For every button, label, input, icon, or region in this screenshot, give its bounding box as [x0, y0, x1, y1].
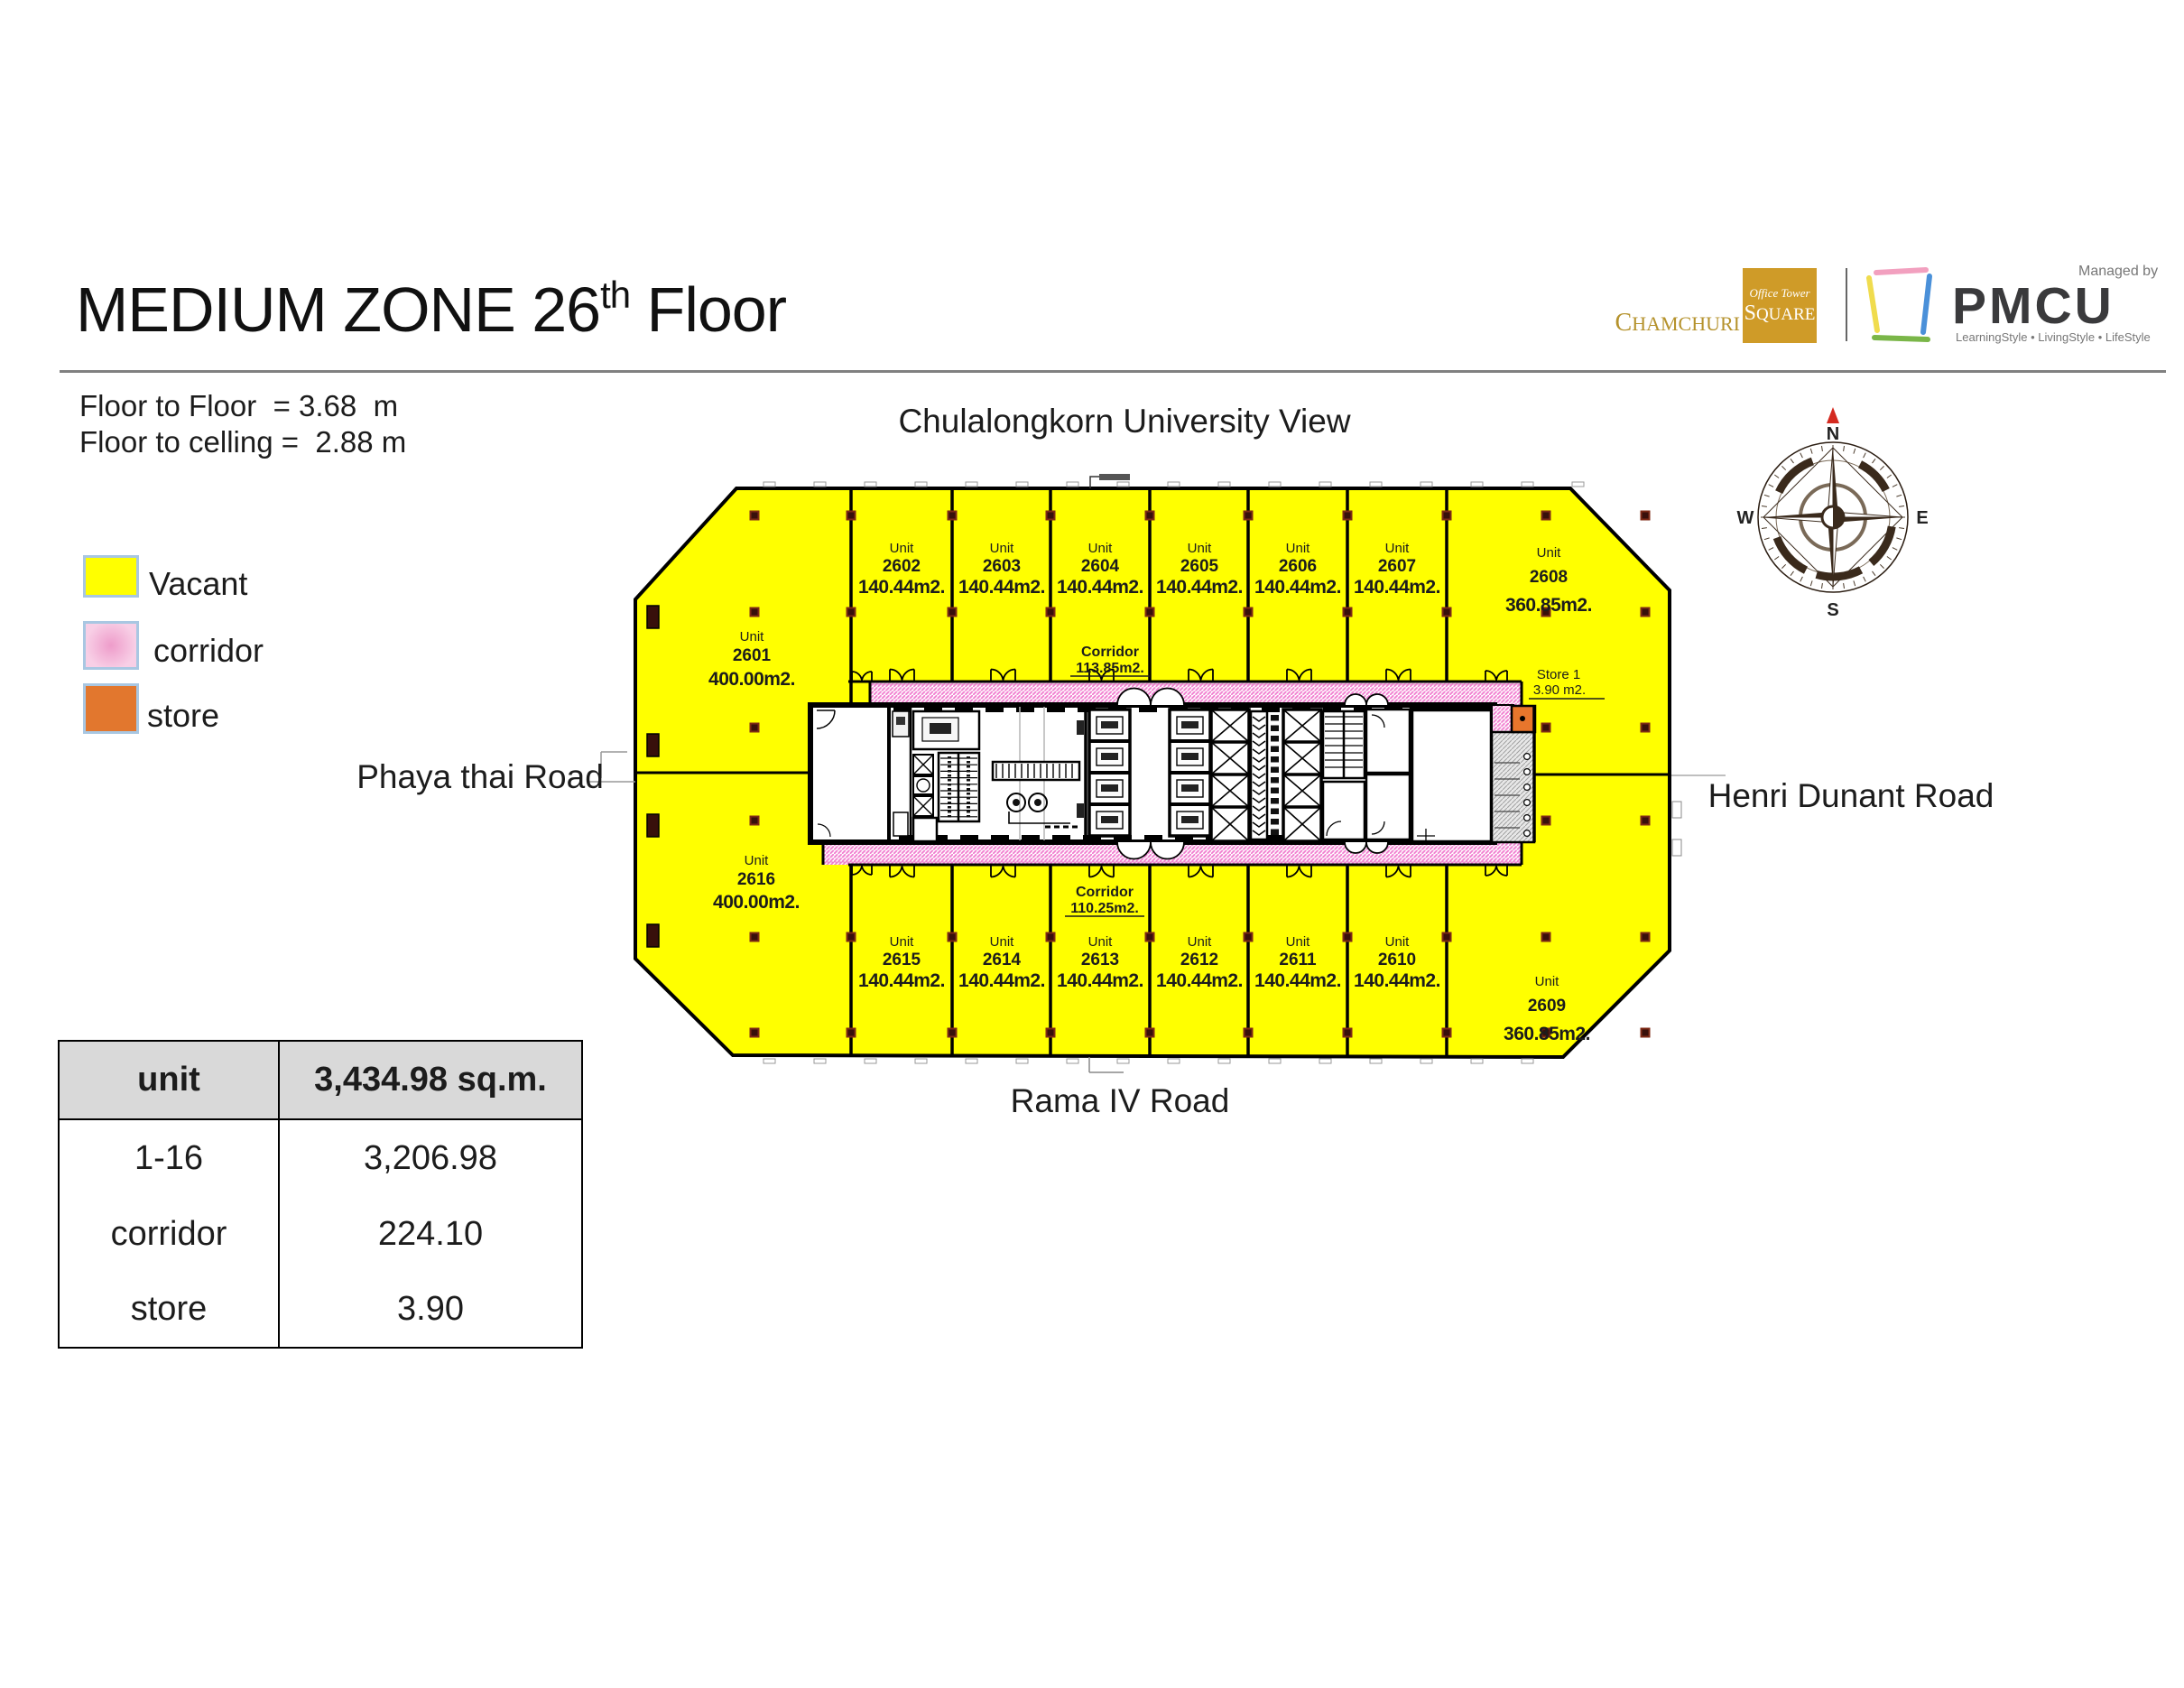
svg-text:W: W — [1737, 508, 1754, 528]
svg-text:Corridor: Corridor — [1081, 645, 1139, 660]
svg-text:Unit: Unit — [1535, 974, 1560, 989]
svg-text:3.90 m2.: 3.90 m2. — [1533, 682, 1586, 698]
svg-text:140.44m2.: 140.44m2. — [1354, 577, 1440, 598]
svg-text:2605: 2605 — [1180, 557, 1219, 576]
svg-text:Unit: Unit — [990, 934, 1015, 950]
svg-text:2607: 2607 — [1378, 557, 1416, 576]
svg-text:Phaya thai Road: Phaya thai Road — [356, 758, 604, 795]
svg-text:140.44m2.: 140.44m2. — [1156, 970, 1243, 991]
svg-text:Corridor: Corridor — [1076, 885, 1134, 900]
svg-text:2603: 2603 — [983, 557, 1021, 576]
svg-text:140.44m2.: 140.44m2. — [1254, 970, 1341, 991]
svg-text:Unit: Unit — [1385, 541, 1411, 556]
svg-text:Unit: Unit — [1088, 934, 1114, 950]
svg-text:140.44m2.: 140.44m2. — [958, 577, 1045, 598]
svg-text:Unit: Unit — [1537, 545, 1562, 561]
svg-text:110.25m2.: 110.25m2. — [1070, 901, 1139, 916]
svg-text:2613: 2613 — [1081, 951, 1119, 969]
svg-text:2615: 2615 — [883, 951, 921, 969]
svg-text:2616: 2616 — [737, 870, 775, 889]
svg-text:400.00m2.: 400.00m2. — [713, 892, 800, 913]
svg-text:2611: 2611 — [1279, 951, 1317, 969]
svg-text:400.00m2.: 400.00m2. — [708, 669, 795, 690]
svg-text:Chulalongkorn University View: Chulalongkorn University View — [898, 403, 1350, 440]
svg-text:360.85m2.: 360.85m2. — [1505, 595, 1592, 616]
svg-text:Rama IV Road: Rama IV Road — [1011, 1082, 1230, 1119]
svg-text:Unit: Unit — [1385, 934, 1411, 950]
svg-text:360.85m2.: 360.85m2. — [1504, 1024, 1590, 1044]
svg-text:140.44m2.: 140.44m2. — [858, 577, 945, 598]
svg-text:Henri Dunant Road: Henri Dunant Road — [1708, 777, 1994, 814]
svg-text:Unit: Unit — [1088, 541, 1114, 556]
svg-text:Unit: Unit — [1286, 541, 1311, 556]
svg-text:Store 1: Store 1 — [1537, 667, 1580, 682]
svg-text:140.44m2.: 140.44m2. — [1254, 577, 1341, 598]
svg-text:2606: 2606 — [1279, 557, 1317, 576]
svg-text:2612: 2612 — [1180, 951, 1218, 969]
svg-text:Unit: Unit — [990, 541, 1015, 556]
svg-text:2610: 2610 — [1378, 951, 1416, 969]
svg-text:2609: 2609 — [1528, 997, 1566, 1016]
svg-text:2608: 2608 — [1530, 568, 1568, 587]
svg-text:140.44m2.: 140.44m2. — [958, 970, 1045, 991]
svg-text:140.44m2.: 140.44m2. — [1354, 970, 1440, 991]
svg-text:140.44m2.: 140.44m2. — [1057, 577, 1143, 598]
svg-text:N: N — [1827, 424, 1839, 444]
svg-text:140.44m2.: 140.44m2. — [858, 970, 945, 991]
svg-text:Unit: Unit — [1188, 934, 1213, 950]
svg-text:2604: 2604 — [1081, 557, 1120, 576]
svg-text:E: E — [1916, 508, 1928, 528]
svg-text:2602: 2602 — [883, 557, 921, 576]
svg-text:Unit: Unit — [890, 934, 915, 950]
svg-text:140.44m2.: 140.44m2. — [1156, 577, 1243, 598]
svg-text:Unit: Unit — [745, 853, 770, 868]
svg-text:Unit: Unit — [1286, 934, 1311, 950]
svg-text:S: S — [1827, 600, 1838, 620]
svg-text:Unit: Unit — [1188, 541, 1213, 556]
svg-text:2601: 2601 — [733, 646, 772, 665]
svg-text:Unit: Unit — [740, 629, 765, 645]
svg-text:113.85m2.: 113.85m2. — [1076, 661, 1144, 676]
svg-text:140.44m2.: 140.44m2. — [1057, 970, 1143, 991]
svg-text:Unit: Unit — [890, 541, 915, 556]
svg-text:2614: 2614 — [983, 951, 1022, 969]
